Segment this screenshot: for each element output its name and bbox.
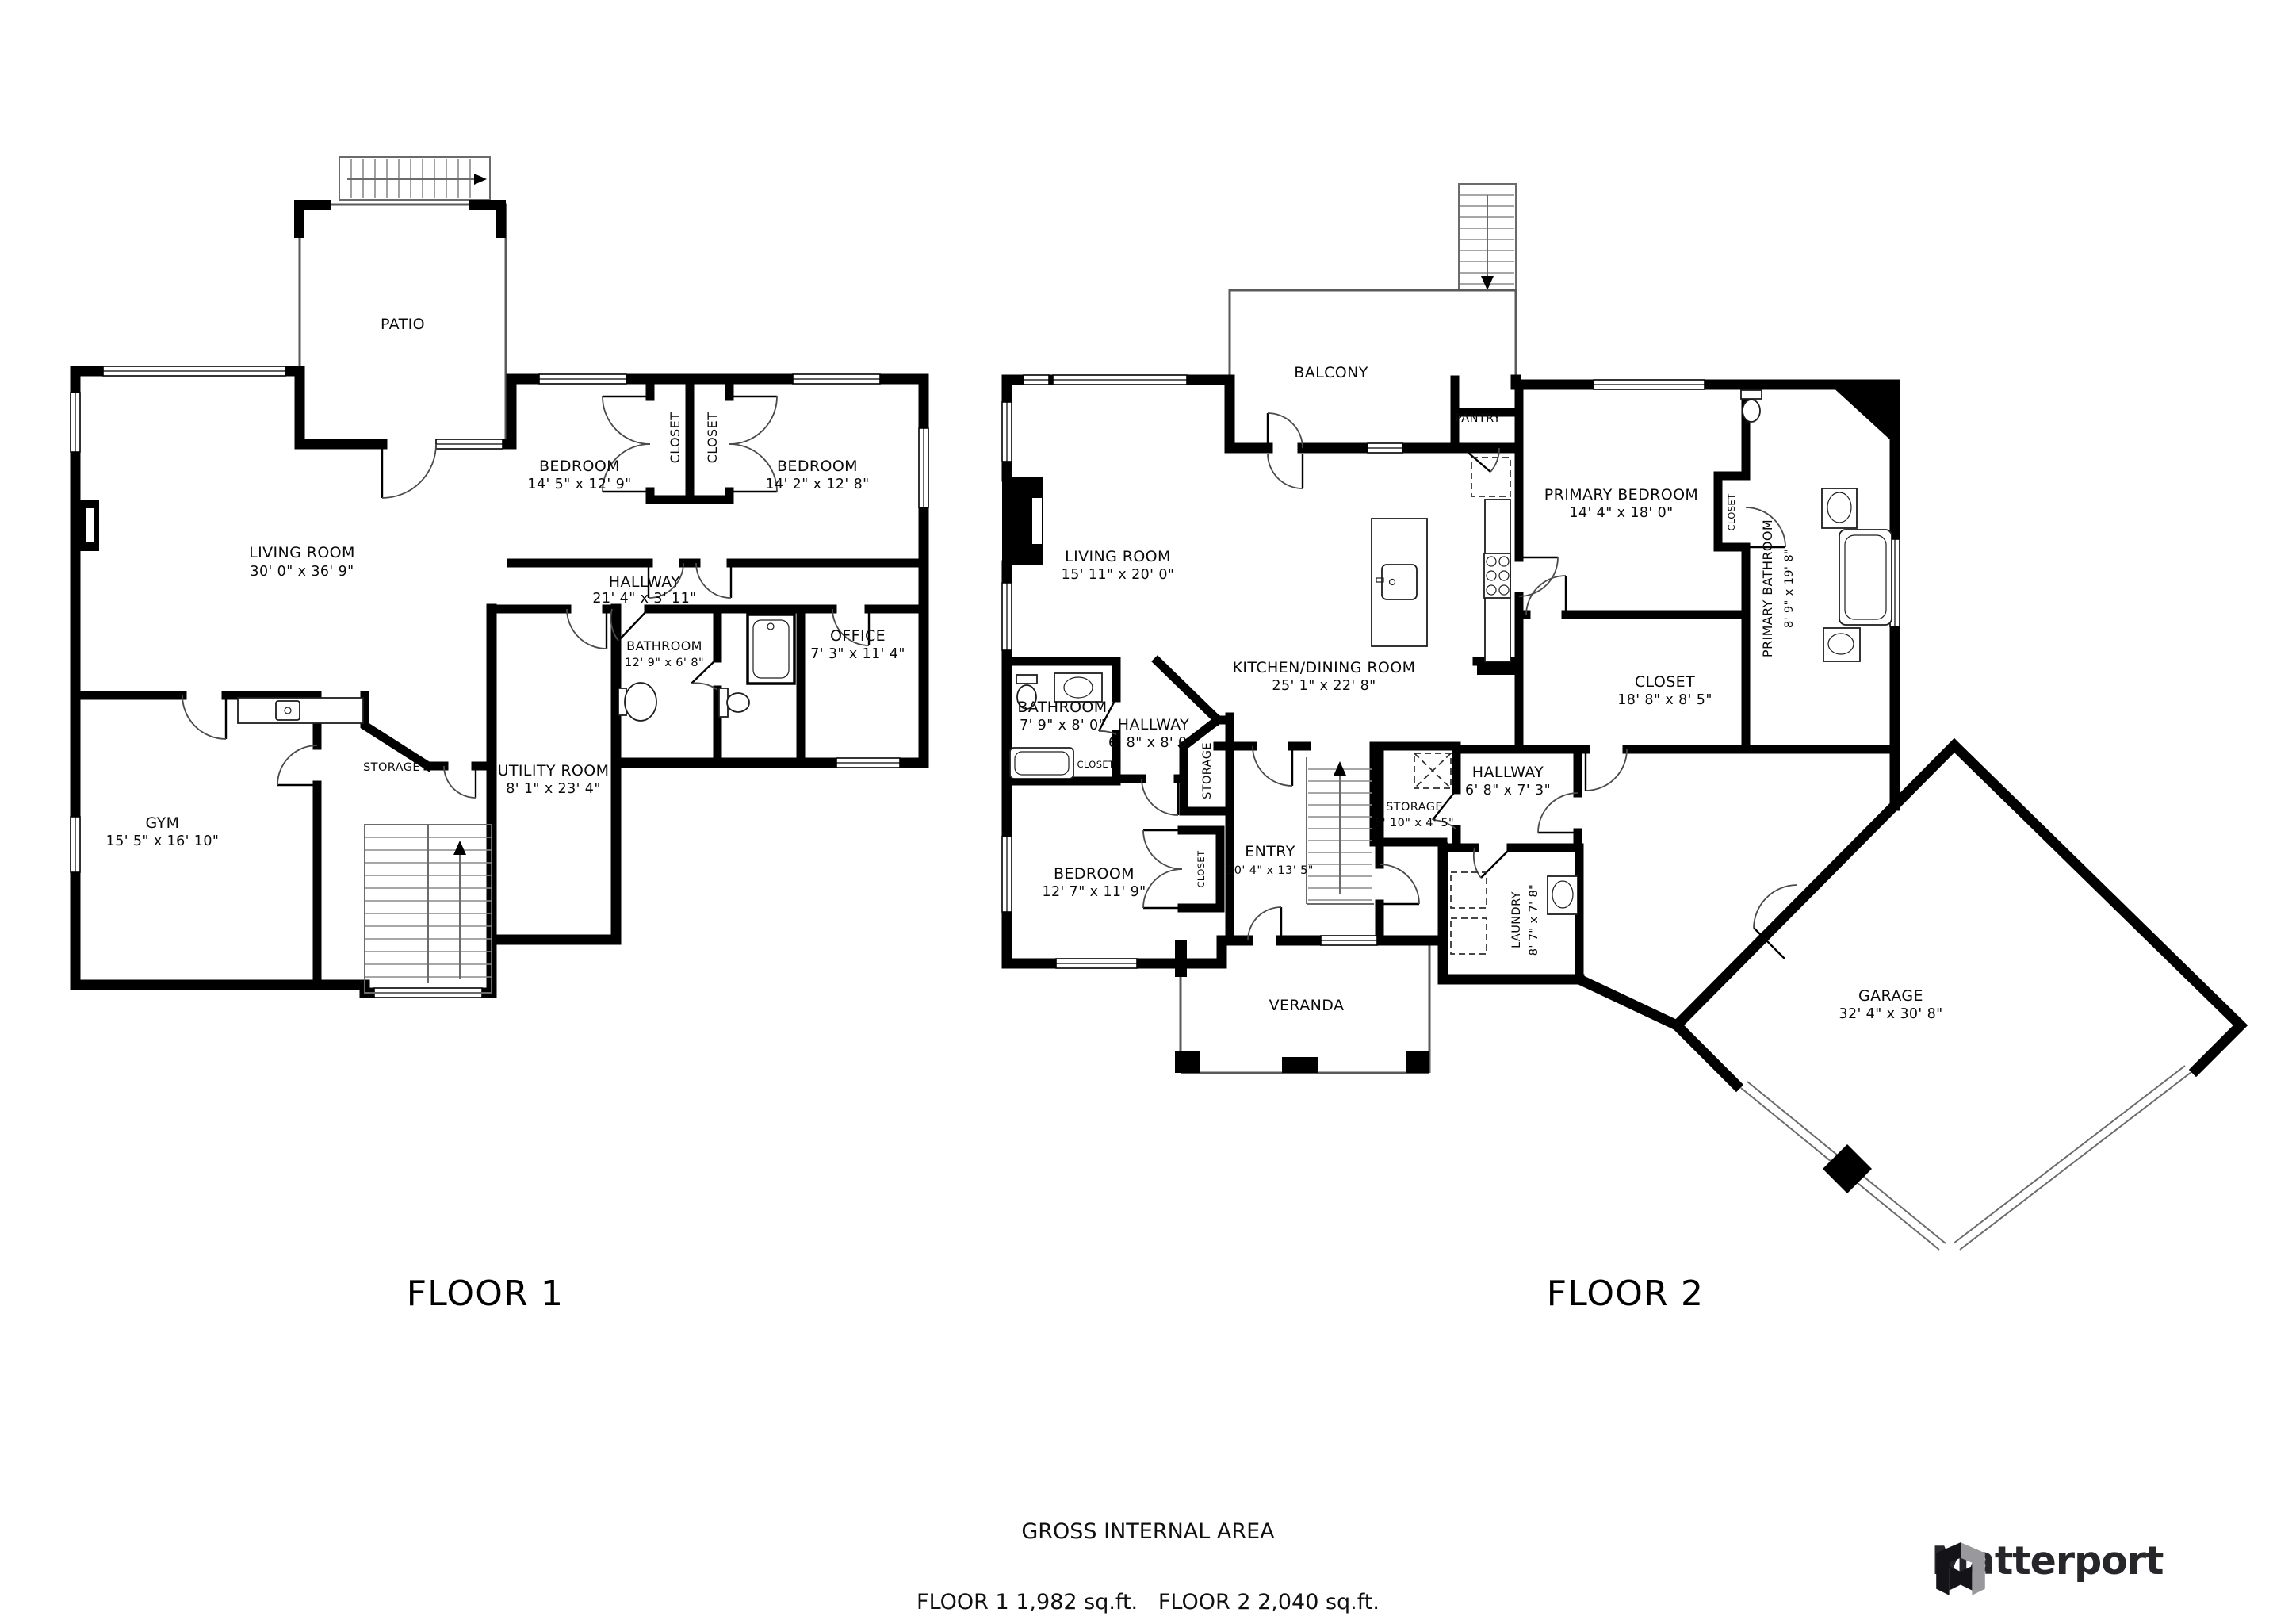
- room-dims-office: 7' 3" x 11' 4": [810, 646, 905, 662]
- counter-end-wall: [1477, 661, 1519, 675]
- room-dims-hallway-east: 6' 8" x 7' 3": [1465, 783, 1551, 799]
- room-label-bathroom: BATHROOM: [626, 638, 702, 653]
- room-label-entry: ENTRY: [1245, 843, 1295, 860]
- floorplan-page: PATIO LIVING ROOM 30' 0" x 36' 9" BEDROO…: [0, 0, 2296, 1624]
- sink-icon-primary-1: [1822, 488, 1857, 528]
- room-dims-bedroom-right: 14' 2" x 12' 8": [765, 477, 869, 492]
- storage-counter-sink-icon: [238, 698, 363, 723]
- room-label-primary-bathroom: PRIMARY BATHROOM: [1760, 519, 1775, 657]
- corner-shower-icon: [1830, 385, 1895, 444]
- room-dims-closet-main: 18' 8" x 8' 5": [1617, 692, 1712, 708]
- floor-plan-canvas: PATIO LIVING ROOM 30' 0" x 36' 9" BEDROO…: [0, 0, 2296, 1624]
- room-dims-bathroom-f2: 7' 9" x 8' 0": [1020, 718, 1105, 733]
- toilet-icon: [719, 688, 749, 717]
- room-label-hallway-east: HALLWAY: [1472, 764, 1544, 781]
- floor1-title: FLOOR 1: [407, 1274, 564, 1314]
- area-summary: GROSS INTERNAL AREA FLOOR 1 1,982 sq.ft.…: [643, 1473, 1653, 1624]
- room-dims-primary-bedroom: 14' 4" x 18' 0": [1569, 505, 1673, 521]
- room-label-bedroom-left: BEDROOM: [539, 458, 620, 475]
- room-label-storage: STORAGE: [363, 761, 420, 774]
- room-dims-utility: 8' 1" x 23' 4": [506, 781, 601, 797]
- room-label-hallway-west: HALLWAY: [1118, 716, 1189, 733]
- room-label-bedroom-right: BEDROOM: [777, 458, 858, 475]
- sink-icon-primary-2: [1823, 628, 1860, 661]
- room-label-living-room: LIVING ROOM: [249, 544, 355, 561]
- room-dims-laundry: 8' 7" x 7' 8": [1528, 884, 1540, 956]
- room-label-patio: PATIO: [381, 316, 425, 333]
- floor1-doors: [182, 396, 869, 798]
- toilet-icon-primary: [1741, 390, 1762, 422]
- laundry-sink-icon: [1548, 876, 1578, 914]
- room-label-closet-bedroom: CLOSET: [1196, 850, 1207, 888]
- room-dims-entry: 10' 4" x 13' 5": [1226, 864, 1314, 877]
- floor1-plan: PATIO LIVING ROOM 30' 0" x 36' 9" BEDROO…: [71, 157, 928, 1314]
- summary-floor-areas: FLOOR 1 1,982 sq.ft. FLOOR 2 2,040 sq.ft…: [643, 1591, 1653, 1614]
- room-dims-gym: 15' 5" x 16' 10": [106, 833, 220, 849]
- room-dims-garage: 32' 4" x 30' 8": [1839, 1006, 1942, 1022]
- room-label-hallway: HALLWAY: [609, 573, 680, 591]
- floor2-stairs-icon: [1307, 757, 1374, 904]
- matterport-logo-icon: [1931, 1538, 1990, 1600]
- floor2-plan: BALCONY PANTRY LIVING ROOM 15' 11" x 20'…: [1002, 184, 2241, 1314]
- room-dims-living-room-f2: 15' 11" x 20' 0": [1062, 567, 1175, 583]
- room-label-veranda: VERANDA: [1269, 997, 1345, 1014]
- room-label-garage: GARAGE: [1858, 987, 1923, 1005]
- sink-icon-floor2-bath: [1054, 673, 1102, 702]
- room-label-living-room-f2: LIVING ROOM: [1065, 548, 1171, 565]
- room-label-closet-a: CLOSET: [668, 412, 683, 464]
- matterport-logo: Matterport: [1931, 1538, 2163, 1584]
- fridge-icon: [1471, 458, 1510, 496]
- bathtub-icon-primary: [1839, 530, 1892, 625]
- floor2-title: FLOOR 2: [1547, 1274, 1704, 1314]
- room-dims-hallway: 21' 4" x 3' 11": [592, 591, 696, 607]
- bathtub-icon-floor2-bath: [1010, 748, 1073, 779]
- room-label-closet-main: CLOSET: [1635, 673, 1695, 691]
- room-label-utility: UTILITY ROOM: [498, 762, 610, 779]
- storage-crate-icon: [1414, 753, 1451, 788]
- room-label-balcony: BALCONY: [1294, 364, 1368, 381]
- room-label-storage-mid: STORAGE: [1386, 801, 1443, 814]
- room-dims-hallway-west: 6' 8" x 8' 0": [1108, 735, 1194, 751]
- room-label-kitchen-dining: KITCHEN/DINING ROOM: [1233, 659, 1416, 676]
- room-label-closet-bath: CLOSET: [1077, 759, 1115, 770]
- bathtub-icon: [748, 615, 794, 684]
- washer-dryer-icon: [1451, 872, 1487, 954]
- room-dims-kitchen-dining: 25' 1" x 22' 8": [1272, 678, 1376, 694]
- room-label-bedroom-f2: BEDROOM: [1054, 865, 1135, 883]
- room-dims-living-room: 30' 0" x 36' 9": [250, 564, 354, 580]
- room-label-office: OFFICE: [830, 627, 886, 645]
- bathroom-sink-icon: [618, 683, 656, 721]
- room-dims-primary-bathroom: 8' 9" x 19' 8": [1783, 549, 1796, 628]
- fireplace-icon-floor2: [1002, 477, 1043, 565]
- balcony-outline: [1230, 290, 1516, 380]
- room-dims-bathroom: 12' 9" x 6' 8": [625, 657, 704, 669]
- room-label-pantry: PANTRY: [1455, 412, 1501, 425]
- stove-icon: [1484, 553, 1510, 598]
- room-label-laundry: LAUNDRY: [1510, 891, 1523, 948]
- room-label-closet-b: CLOSET: [705, 412, 720, 464]
- room-dims-bedroom-f2: 12' 7" x 11' 9": [1042, 884, 1146, 900]
- fireplace-icon: [71, 500, 99, 551]
- room-dims-storage-mid: 5' 10" x 4' 5": [1375, 817, 1454, 829]
- patio-stairs-icon: [339, 157, 490, 200]
- summary-title: GROSS INTERNAL AREA: [643, 1520, 1653, 1544]
- floor1-stairs-icon: [365, 825, 492, 993]
- balcony-stairs-icon: [1459, 184, 1516, 290]
- room-label-bathroom-f2: BATHROOM: [1017, 699, 1107, 716]
- room-dims-bedroom-left: 14' 5" x 12' 9": [527, 477, 631, 492]
- room-label-primary-bedroom: PRIMARY BEDROOM: [1544, 486, 1698, 504]
- kitchen-island: [1372, 519, 1427, 646]
- room-label-gym: GYM: [146, 814, 180, 832]
- room-label-closet-primary: CLOSET: [1726, 493, 1737, 531]
- garage-doors: [1741, 1066, 2191, 1250]
- room-label-storage-west: STORAGE: [1201, 742, 1214, 799]
